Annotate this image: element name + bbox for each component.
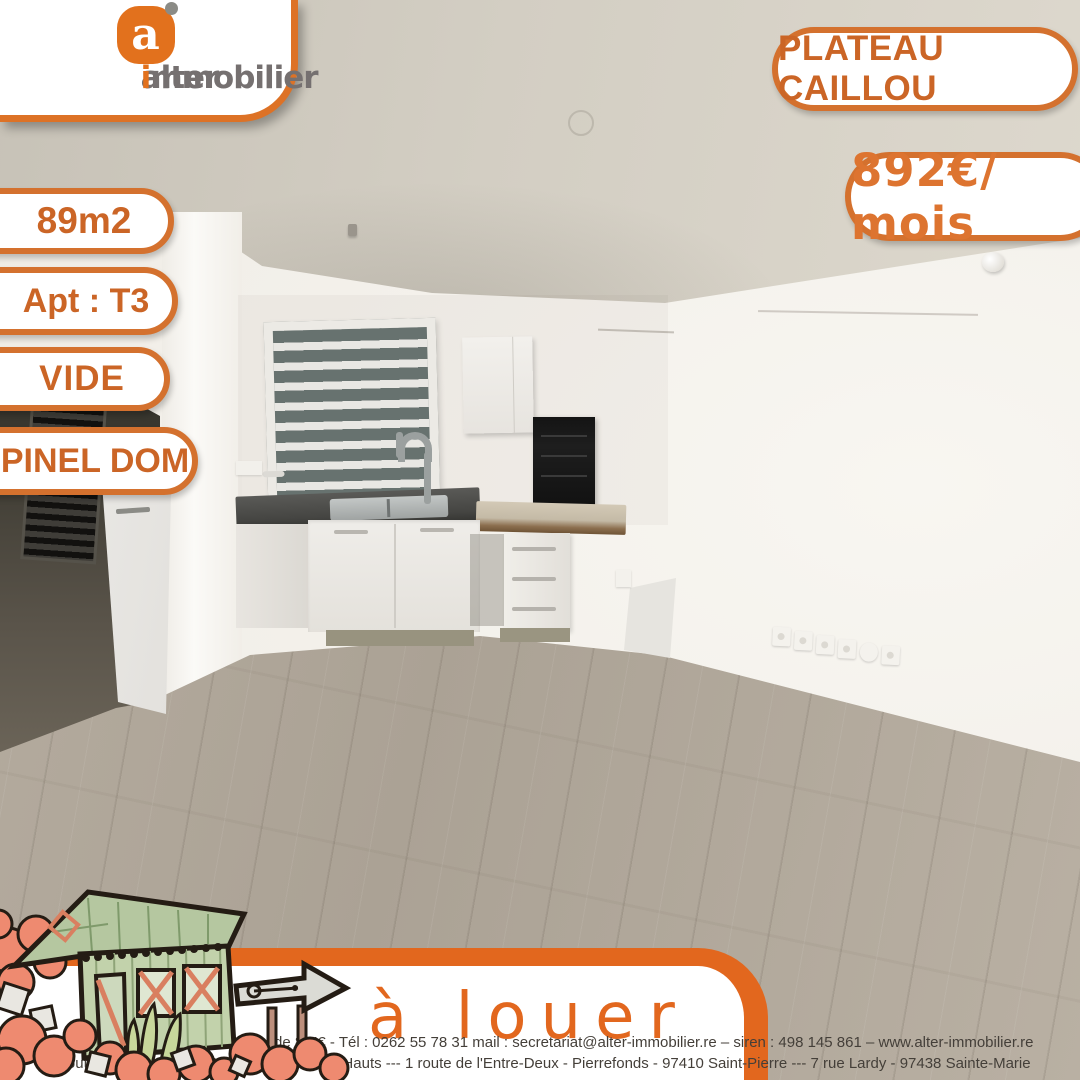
photo-faucet-stem: [424, 452, 431, 504]
photo-base-cabinets: [308, 520, 480, 632]
photo-window-slats: [273, 327, 431, 503]
photo-wood-countertop: [476, 501, 627, 535]
brand-logo-icon: a: [117, 6, 175, 64]
photo-kitchen-window: [264, 318, 441, 510]
logo-dot: [165, 2, 178, 15]
photo-plinth: [326, 630, 474, 646]
photo-black-unit: [533, 417, 595, 514]
photo-faucet-spout: [396, 432, 403, 458]
creole-house-illustration: [0, 858, 360, 1080]
price-badge: 892€/ mois: [845, 152, 1080, 241]
tax-scheme-badge: PINEL DOM: [0, 427, 198, 495]
photo-plinth-2: [500, 628, 570, 642]
photo-window-handle: [262, 471, 284, 478]
brand-logo-card: a alterimmobilier: [0, 0, 298, 122]
photo-outlet-single: [616, 570, 631, 587]
brand-wordmark: alterimmobilier: [141, 60, 151, 96]
area-badge: 89m2: [0, 188, 174, 254]
apartment-type-badge: Apt : T3: [0, 267, 178, 335]
photo-kitchen-outlet: [236, 461, 262, 475]
rental-ad-poster: à louer Alter Immobilier – sarl au capit…: [0, 0, 1080, 1080]
photo-wall-cabinet: [462, 336, 534, 433]
photo-ceiling-mark: [568, 110, 594, 136]
house-window-2: [184, 966, 220, 1012]
photo-counter-shadow: [470, 534, 506, 626]
photo-left-cabinet: [236, 524, 310, 628]
location-badge: PLATEAU CAILLOU: [772, 27, 1078, 111]
photo-drawer-unit: [504, 533, 570, 631]
furnishing-badge: VIDE: [0, 347, 170, 411]
photo-outlet-row: [771, 621, 903, 678]
photo-sprinkler: [348, 224, 357, 236]
photo-smoke-detector: [982, 252, 1004, 272]
